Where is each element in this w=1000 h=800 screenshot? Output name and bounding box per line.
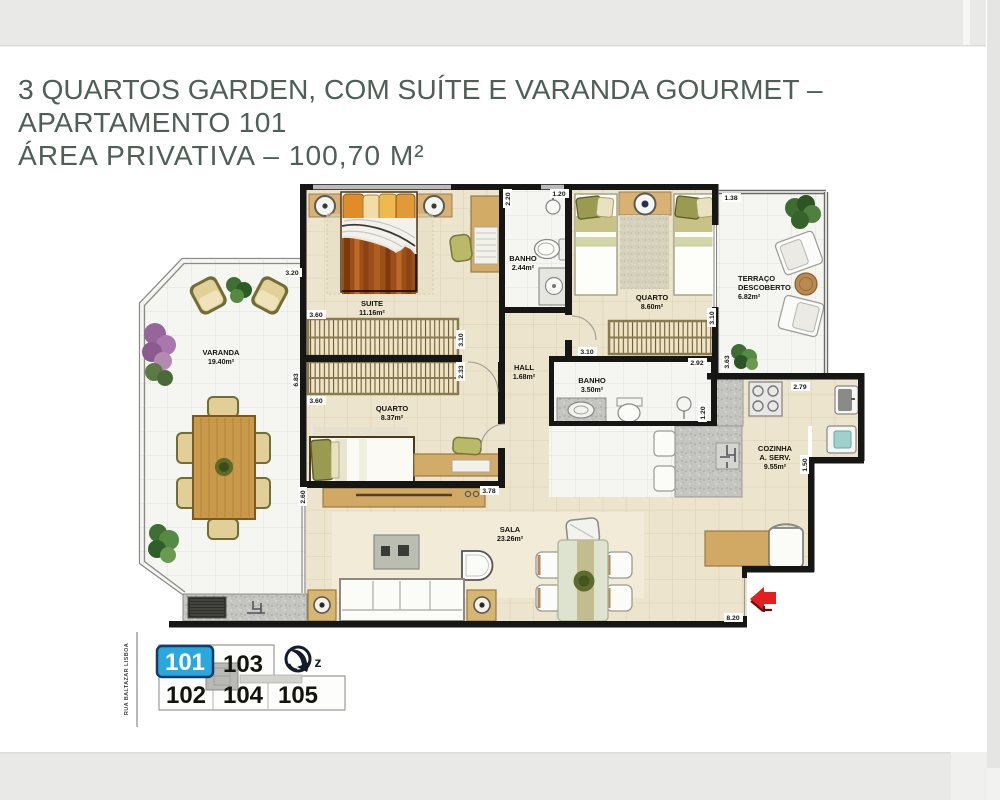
svg-text:2.20: 2.20 xyxy=(505,192,512,205)
svg-text:6.83: 6.83 xyxy=(293,373,300,386)
svg-text:3.60: 3.60 xyxy=(309,312,322,319)
svg-text:23.26m²: 23.26m² xyxy=(497,536,524,543)
svg-text:8.60m²: 8.60m² xyxy=(641,304,664,311)
svg-text:103: 103 xyxy=(223,651,263,678)
svg-text:QUARTO: QUARTO xyxy=(636,293,669,302)
svg-text:105: 105 xyxy=(278,682,318,709)
svg-text:3.78: 3.78 xyxy=(482,488,495,495)
svg-text:3.20: 3.20 xyxy=(285,270,298,277)
svg-text:8.20: 8.20 xyxy=(726,615,739,622)
svg-text:1.50: 1.50 xyxy=(802,458,809,471)
svg-text:8.37m²: 8.37m² xyxy=(381,415,404,422)
svg-text:SALA: SALA xyxy=(500,525,521,534)
svg-text:11.16m²: 11.16m² xyxy=(359,310,385,317)
svg-text:BANHO: BANHO xyxy=(509,254,537,263)
svg-text:QUARTO: QUARTO xyxy=(376,404,409,413)
svg-text:1.20: 1.20 xyxy=(700,406,707,419)
svg-text:VARANDA: VARANDA xyxy=(203,348,241,357)
svg-text:3.10: 3.10 xyxy=(458,333,465,346)
svg-text:COZINHA: COZINHA xyxy=(758,444,793,453)
svg-text:2.92: 2.92 xyxy=(690,360,703,367)
svg-text:2.60: 2.60 xyxy=(300,490,307,503)
svg-text:SUITE: SUITE xyxy=(361,299,383,308)
svg-text:z: z xyxy=(315,654,322,670)
svg-text:APARTAMENTO 101: APARTAMENTO 101 xyxy=(18,106,287,138)
svg-text:2.79: 2.79 xyxy=(793,384,806,391)
svg-text:ÁREA PRIVATIVA – 100,70 M²: ÁREA PRIVATIVA – 100,70 M² xyxy=(18,139,425,171)
svg-text:TERRAÇO: TERRAÇO xyxy=(738,274,775,283)
svg-text:3.10: 3.10 xyxy=(709,311,716,324)
svg-text:1.68m²: 1.68m² xyxy=(513,374,536,381)
svg-text:1.38: 1.38 xyxy=(724,195,737,202)
svg-text:HALL: HALL xyxy=(514,363,534,372)
svg-text:2.44m²: 2.44m² xyxy=(512,265,535,272)
svg-text:102: 102 xyxy=(166,682,206,709)
svg-text:3 QUARTOS GARDEN, COM SUÍTE E: 3 QUARTOS GARDEN, COM SUÍTE E VARANDA GO… xyxy=(18,73,823,105)
svg-text:3.63: 3.63 xyxy=(724,355,731,368)
svg-text:DESCOBERTO: DESCOBERTO xyxy=(738,283,791,292)
svg-text:RUA BALTAZAR LISBOA: RUA BALTAZAR LISBOA xyxy=(124,643,130,715)
svg-text:3.10: 3.10 xyxy=(580,349,593,356)
svg-text:1.20: 1.20 xyxy=(552,191,565,198)
svg-text:101: 101 xyxy=(165,649,205,676)
svg-text:BANHO: BANHO xyxy=(578,376,606,385)
svg-text:9.55m²: 9.55m² xyxy=(764,464,787,471)
svg-text:2.33: 2.33 xyxy=(458,365,465,378)
svg-text:19.40m²: 19.40m² xyxy=(208,359,235,366)
svg-text:A. SERV.: A. SERV. xyxy=(759,453,790,462)
svg-text:104: 104 xyxy=(223,682,264,709)
svg-text:6.82m²: 6.82m² xyxy=(738,294,761,301)
svg-text:3.50m²: 3.50m² xyxy=(581,387,604,394)
svg-text:3.60: 3.60 xyxy=(309,398,322,405)
